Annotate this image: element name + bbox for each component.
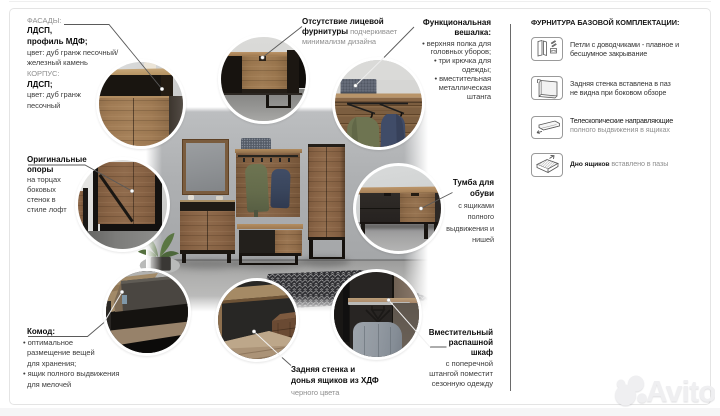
svg-text:Avito: Avito [646,376,715,409]
